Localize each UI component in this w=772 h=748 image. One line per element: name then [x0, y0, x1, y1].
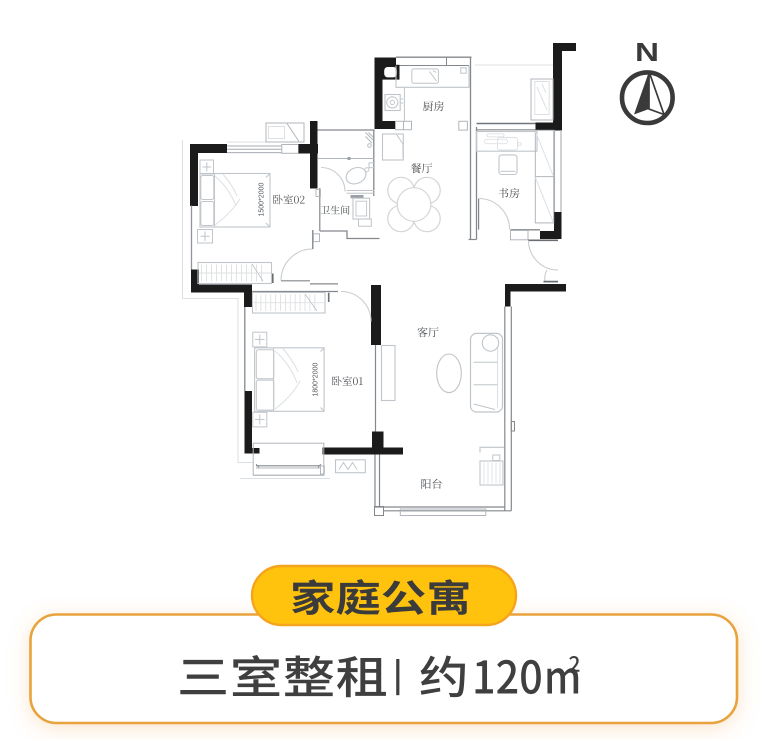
svg-text:1800*2000: 1800*2000: [313, 363, 320, 397]
svg-text:1500*2000: 1500*2000: [259, 183, 266, 217]
svg-text:N: N: [635, 38, 659, 67]
